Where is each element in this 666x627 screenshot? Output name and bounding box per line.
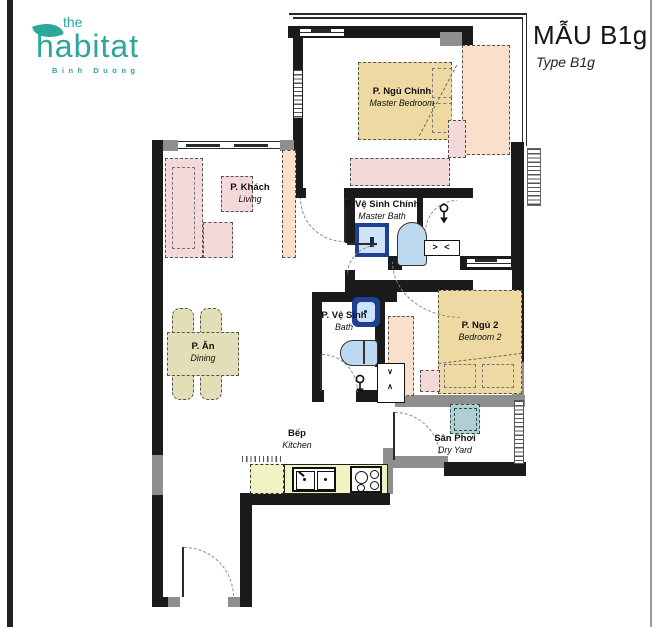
ac-ledge: [527, 148, 541, 206]
wall-gray: [168, 597, 180, 607]
page-edge-right: [650, 0, 652, 627]
logo-name: habitat: [36, 28, 139, 65]
dresser-master: [350, 158, 450, 186]
plan-title: MẪU B1g: [533, 20, 648, 51]
bed2-pillow: [444, 364, 476, 388]
door-arc-entry: [184, 547, 234, 597]
shaft-top: ∨: [387, 367, 395, 376]
wardrobe-master: [462, 45, 510, 155]
room-label-dining: P. Ăn Dining: [169, 341, 237, 365]
sofa-chaise: [203, 222, 233, 258]
washing-machine: [450, 404, 480, 434]
room-name-en: Dry Yard: [438, 445, 472, 455]
dining-chair: [172, 372, 194, 400]
room-name-en: Master Bedroom: [369, 98, 434, 108]
door-arc-master-bath: [347, 245, 377, 275]
room-name-vi: P. Ngủ 2: [462, 320, 499, 331]
shaft-marker: ∨ ∧: [377, 363, 405, 403]
counter-hatch: [242, 456, 284, 462]
dining-chair: [200, 372, 222, 400]
room-name-vi: P. Vệ Sinh: [321, 310, 366, 321]
room-name-en: Bath: [335, 322, 353, 332]
wall: [444, 462, 526, 476]
room-label-master-bedroom: P. Ngủ Chính Master Bedroom: [352, 86, 452, 110]
parapet-line: [289, 13, 527, 15]
shower-icon: [436, 203, 452, 225]
window-master-side: [294, 70, 302, 118]
wall: [152, 495, 163, 607]
room-label-living: P. Khách Living: [214, 182, 286, 206]
bed2-pillow: [482, 364, 514, 388]
toilet-bath: [340, 340, 378, 366]
room-name-vi: P. Ăn: [191, 341, 214, 352]
shower-icon: [352, 374, 368, 396]
wall: [511, 142, 524, 262]
logo-location: Binh Duong: [52, 66, 140, 75]
vent-marker: > <: [424, 240, 460, 256]
wall: [240, 493, 390, 505]
window-living: [178, 140, 280, 151]
stove: [350, 466, 382, 493]
room-name-en: Kitchen: [282, 440, 311, 450]
room-name-vi: Bếp: [288, 428, 306, 439]
wall: [344, 188, 473, 198]
window-cap: [163, 140, 178, 151]
room-name-vi: Sân Phơi: [434, 433, 476, 444]
parapet-line: [522, 17, 524, 144]
shaft-bottom: ∧: [387, 382, 395, 391]
floor-plan-page: the habitat Binh Duong MẪU B1g Type B1g: [0, 0, 666, 627]
plan-subtitle: Type B1g: [536, 54, 595, 70]
kitchen-cabinet: [250, 464, 284, 494]
room-name-vi: P. Ngủ Chính: [373, 86, 431, 97]
page-edge-left: [7, 0, 13, 627]
window-master-top: [300, 29, 344, 36]
kitchen-sink: [292, 467, 336, 492]
room-label-bath: P. Vệ Sinh Bath: [314, 310, 374, 334]
room-name-en: Master Bath: [358, 211, 405, 221]
parapet-line: [293, 17, 523, 19]
door-arc-bedroom2: [392, 262, 462, 318]
room-name-en: Living: [239, 194, 262, 204]
toilet-master: [397, 222, 427, 266]
wall: [152, 597, 168, 607]
side-unit-master: [448, 120, 466, 158]
room-name-en: Dining: [191, 353, 216, 363]
nightstand-bedroom2: [420, 370, 440, 392]
room-label-kitchen: Bếp Kitchen: [262, 428, 332, 452]
parapet-line: [526, 13, 528, 146]
room-name-vi: P. Khách: [230, 182, 269, 193]
room-label-dry-yard: Sân Phơi Dry Yard: [418, 433, 492, 457]
wall: [240, 493, 252, 607]
room-name-en: Bedroom 2: [458, 332, 501, 342]
window-bedroom2: [467, 259, 511, 267]
wall-gray: [152, 455, 163, 495]
room-label-bedroom2: P. Ngủ 2 Bedroom 2: [438, 320, 522, 344]
sofa-seat: [172, 167, 195, 249]
wall: [152, 140, 163, 455]
dry-yard-railing: [514, 400, 524, 464]
room-name-vi: P. Vệ Sinh Chính: [345, 199, 420, 210]
room-label-master-bath: P. Vệ Sinh Chính Master Bath: [338, 199, 426, 223]
